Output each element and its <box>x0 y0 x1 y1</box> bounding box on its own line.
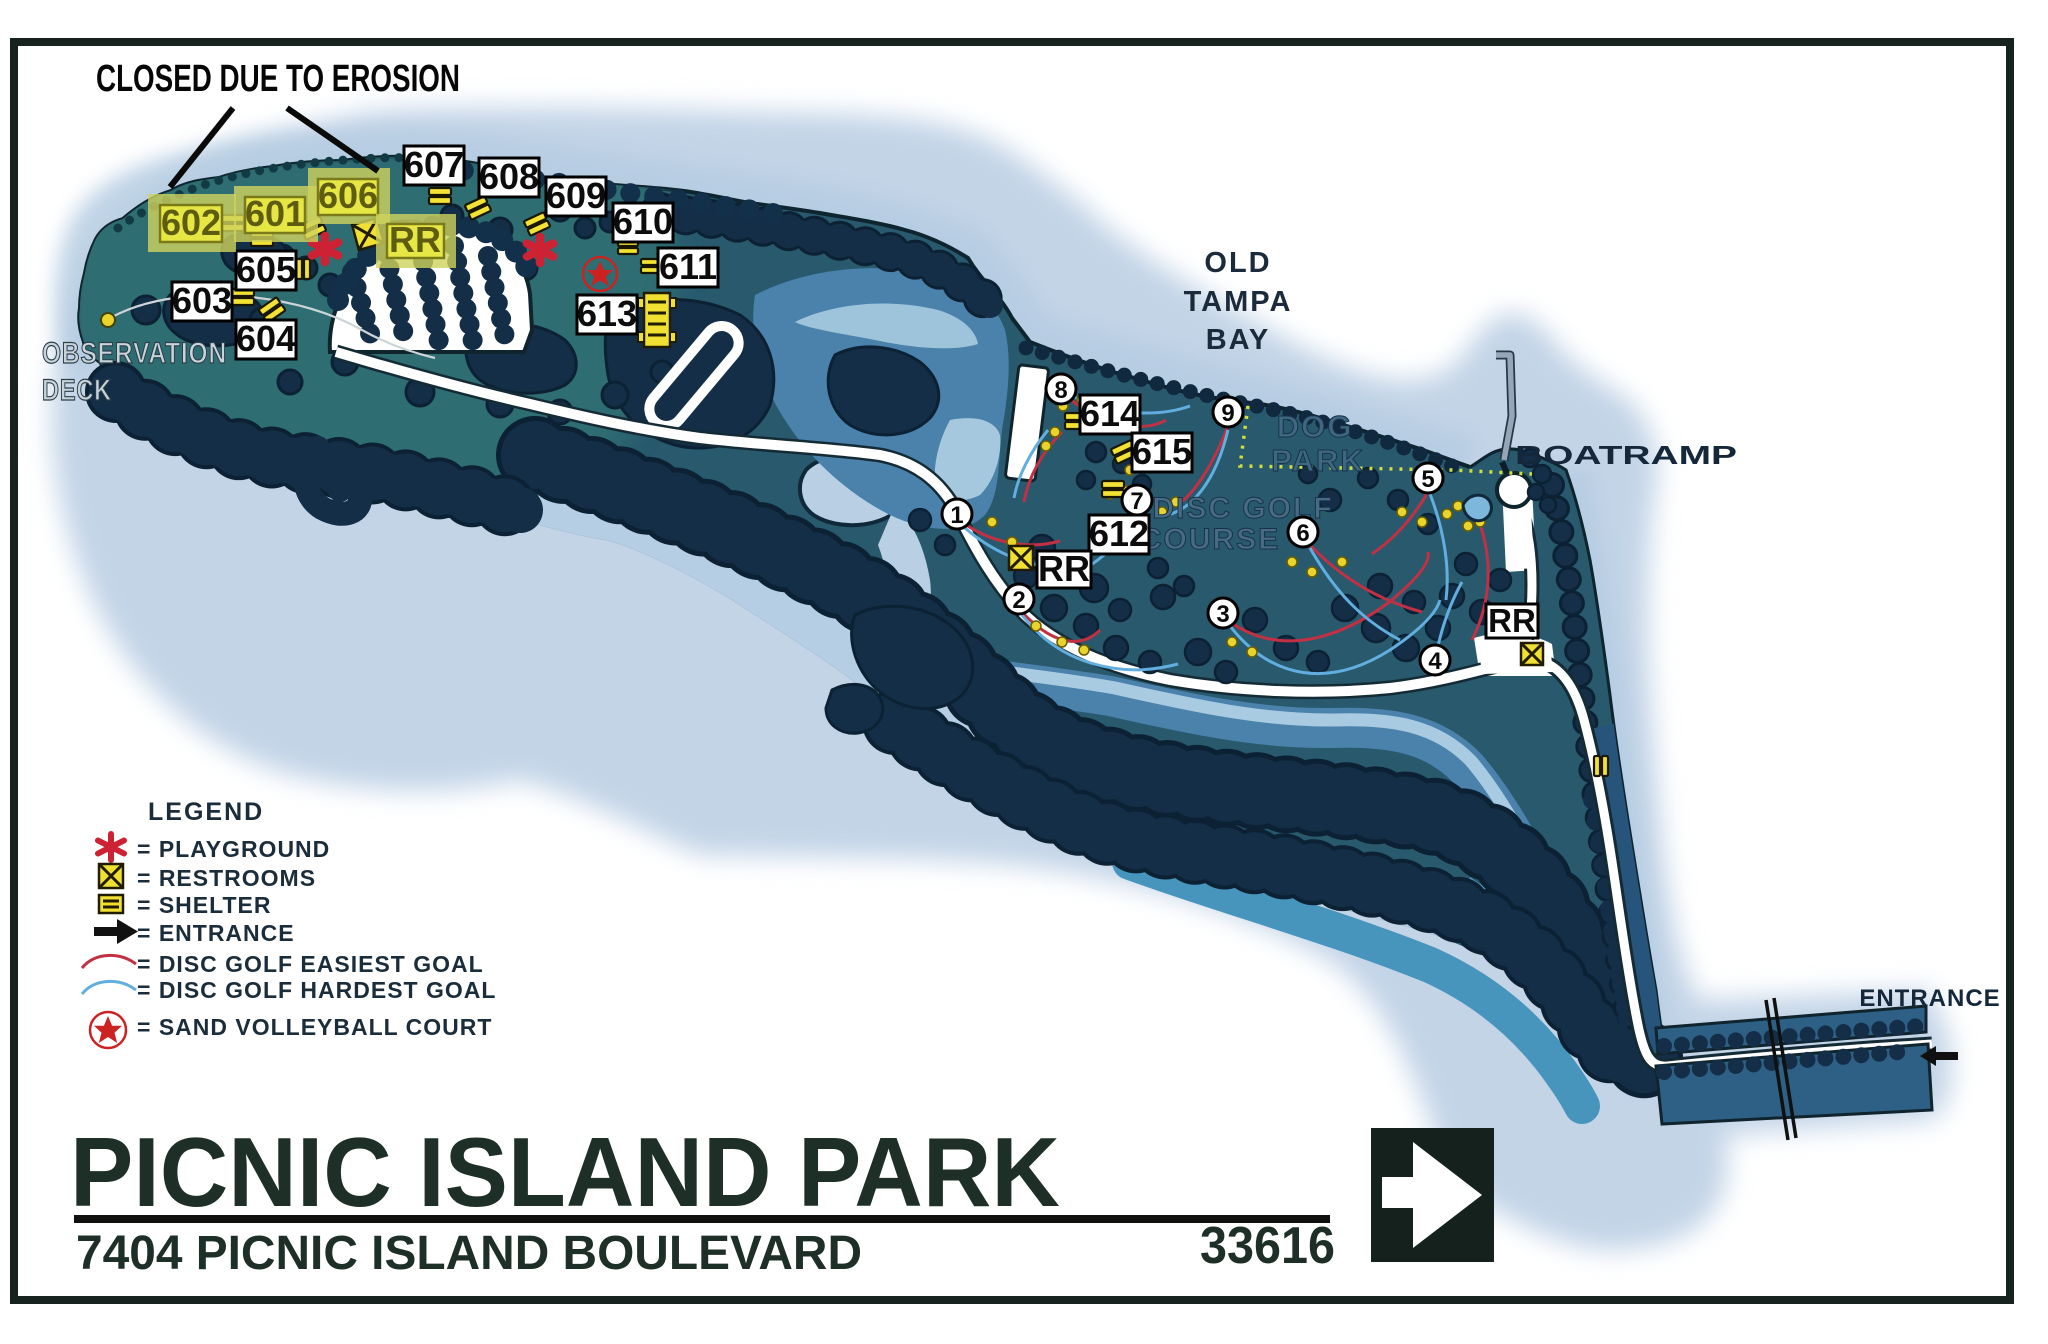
svg-text:3: 3 <box>1216 601 1229 628</box>
svg-text:606: 606 <box>318 175 378 216</box>
svg-text:611: 611 <box>659 246 717 287</box>
svg-text:OLD: OLD <box>1204 247 1271 279</box>
svg-text:2: 2 <box>1012 587 1025 614</box>
svg-text:615: 615 <box>1132 431 1192 472</box>
svg-text:ENTRANCE: ENTRANCE <box>1859 985 2000 1012</box>
svg-text:7: 7 <box>1130 488 1143 515</box>
svg-text:= ENTRANCE: = ENTRANCE <box>137 920 295 946</box>
svg-text:COURSE: COURSE <box>1140 523 1280 556</box>
svg-text:RR: RR <box>389 219 441 260</box>
svg-text:33616: 33616 <box>1200 1217 1335 1275</box>
svg-text:= SAND VOLLEYBALL COURT: = SAND VOLLEYBALL COURT <box>137 1014 492 1040</box>
svg-text:604: 604 <box>236 318 296 359</box>
svg-text:4: 4 <box>1428 648 1442 675</box>
svg-text:RR: RR <box>1038 548 1090 589</box>
svg-text:9: 9 <box>1221 400 1234 427</box>
svg-text:BAY: BAY <box>1206 324 1271 356</box>
svg-text:613: 613 <box>577 293 637 334</box>
svg-text:608: 608 <box>479 156 539 197</box>
svg-text:605: 605 <box>236 249 296 290</box>
svg-text:6: 6 <box>1296 520 1309 547</box>
svg-text:= DISC GOLF EASIEST GOAL: = DISC GOLF EASIEST GOAL <box>137 951 484 977</box>
svg-text:5: 5 <box>1421 466 1434 493</box>
svg-text:= RESTROOMS: = RESTROOMS <box>137 865 316 891</box>
svg-text:TAMPA: TAMPA <box>1184 286 1293 318</box>
svg-text:DECK: DECK <box>42 374 112 407</box>
svg-text:= DISC GOLF HARDEST GOAL: = DISC GOLF HARDEST GOAL <box>137 977 496 1003</box>
svg-text:601: 601 <box>245 193 305 234</box>
svg-text:CLOSED DUE TO EROSION: CLOSED DUE TO EROSION <box>96 58 460 100</box>
svg-text:602: 602 <box>161 202 221 243</box>
svg-text:8: 8 <box>1054 377 1067 404</box>
svg-text:= PLAYGROUND: = PLAYGROUND <box>137 836 330 862</box>
svg-text:612: 612 <box>1089 513 1149 554</box>
svg-text:609: 609 <box>546 175 606 216</box>
svg-text:LEGEND: LEGEND <box>148 798 264 826</box>
svg-text:RR: RR <box>1488 602 1536 639</box>
svg-text:OBSERVATION: OBSERVATION <box>42 337 227 370</box>
svg-text:607: 607 <box>404 144 464 185</box>
svg-text:PARK: PARK <box>1271 443 1365 478</box>
svg-text:PICNIC ISLAND PARK: PICNIC ISLAND PARK <box>70 1117 1060 1227</box>
svg-text:DOG: DOG <box>1277 409 1354 444</box>
svg-text:610: 610 <box>613 201 673 242</box>
svg-text:7404 PICNIC ISLAND BOULEVARD: 7404 PICNIC ISLAND BOULEVARD <box>76 1227 862 1280</box>
svg-text:603: 603 <box>172 280 232 321</box>
svg-text:BOATRAMP: BOATRAMP <box>1515 440 1737 470</box>
svg-text:= SHELTER: = SHELTER <box>137 892 271 918</box>
svg-text:614: 614 <box>1080 393 1140 434</box>
svg-text:1: 1 <box>950 502 963 529</box>
